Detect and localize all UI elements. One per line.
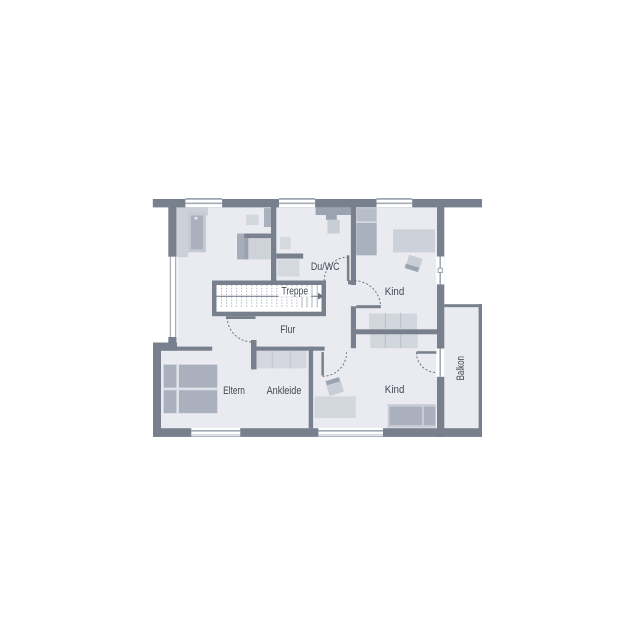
svg-text:Treppe: Treppe — [282, 286, 309, 298]
svg-text:Kind: Kind — [385, 286, 405, 298]
svg-text:Du/WC: Du/WC — [311, 261, 340, 273]
svg-text:Flur: Flur — [280, 324, 295, 336]
svg-text:Eltern: Eltern — [223, 385, 245, 397]
svg-text:Balkon: Balkon — [455, 356, 467, 380]
svg-text:Ankleide: Ankleide — [267, 385, 302, 397]
svg-text:Kind: Kind — [385, 384, 405, 396]
